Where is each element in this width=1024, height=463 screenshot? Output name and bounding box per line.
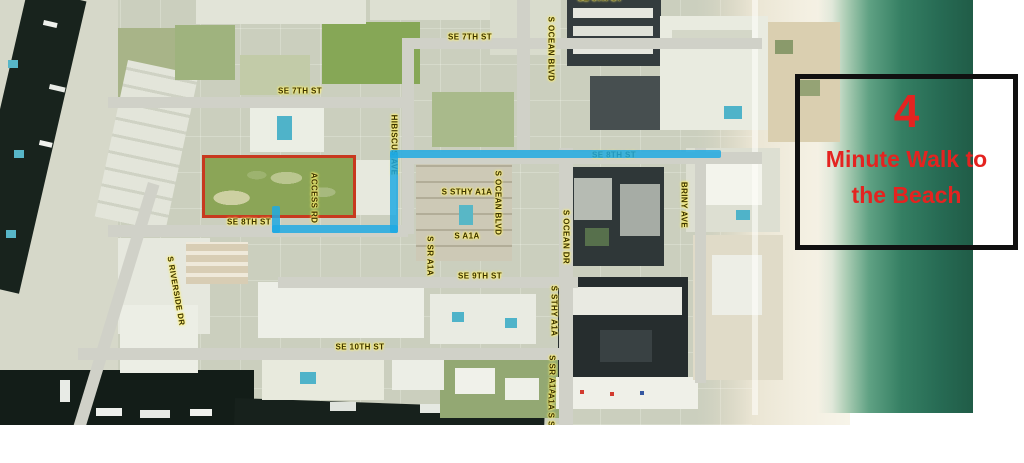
walk-time-line2: the Beach bbox=[800, 177, 1013, 213]
walk-time-line1: Minute Walk to bbox=[800, 141, 1013, 177]
route-line-segment bbox=[390, 152, 398, 233]
listing-photo-canvas: SE 6TH CTSE 7TH STSE 7TH STSE 8TH STSE 8… bbox=[0, 0, 1024, 463]
walk-time-text: Minute Walk to the Beach bbox=[800, 141, 1013, 213]
route-line-segment bbox=[390, 150, 721, 158]
walk-time-annotation: 4 Minute Walk to the Beach bbox=[795, 74, 1018, 250]
walk-time-number: 4 bbox=[800, 87, 1013, 135]
route-line-segment bbox=[272, 225, 398, 233]
